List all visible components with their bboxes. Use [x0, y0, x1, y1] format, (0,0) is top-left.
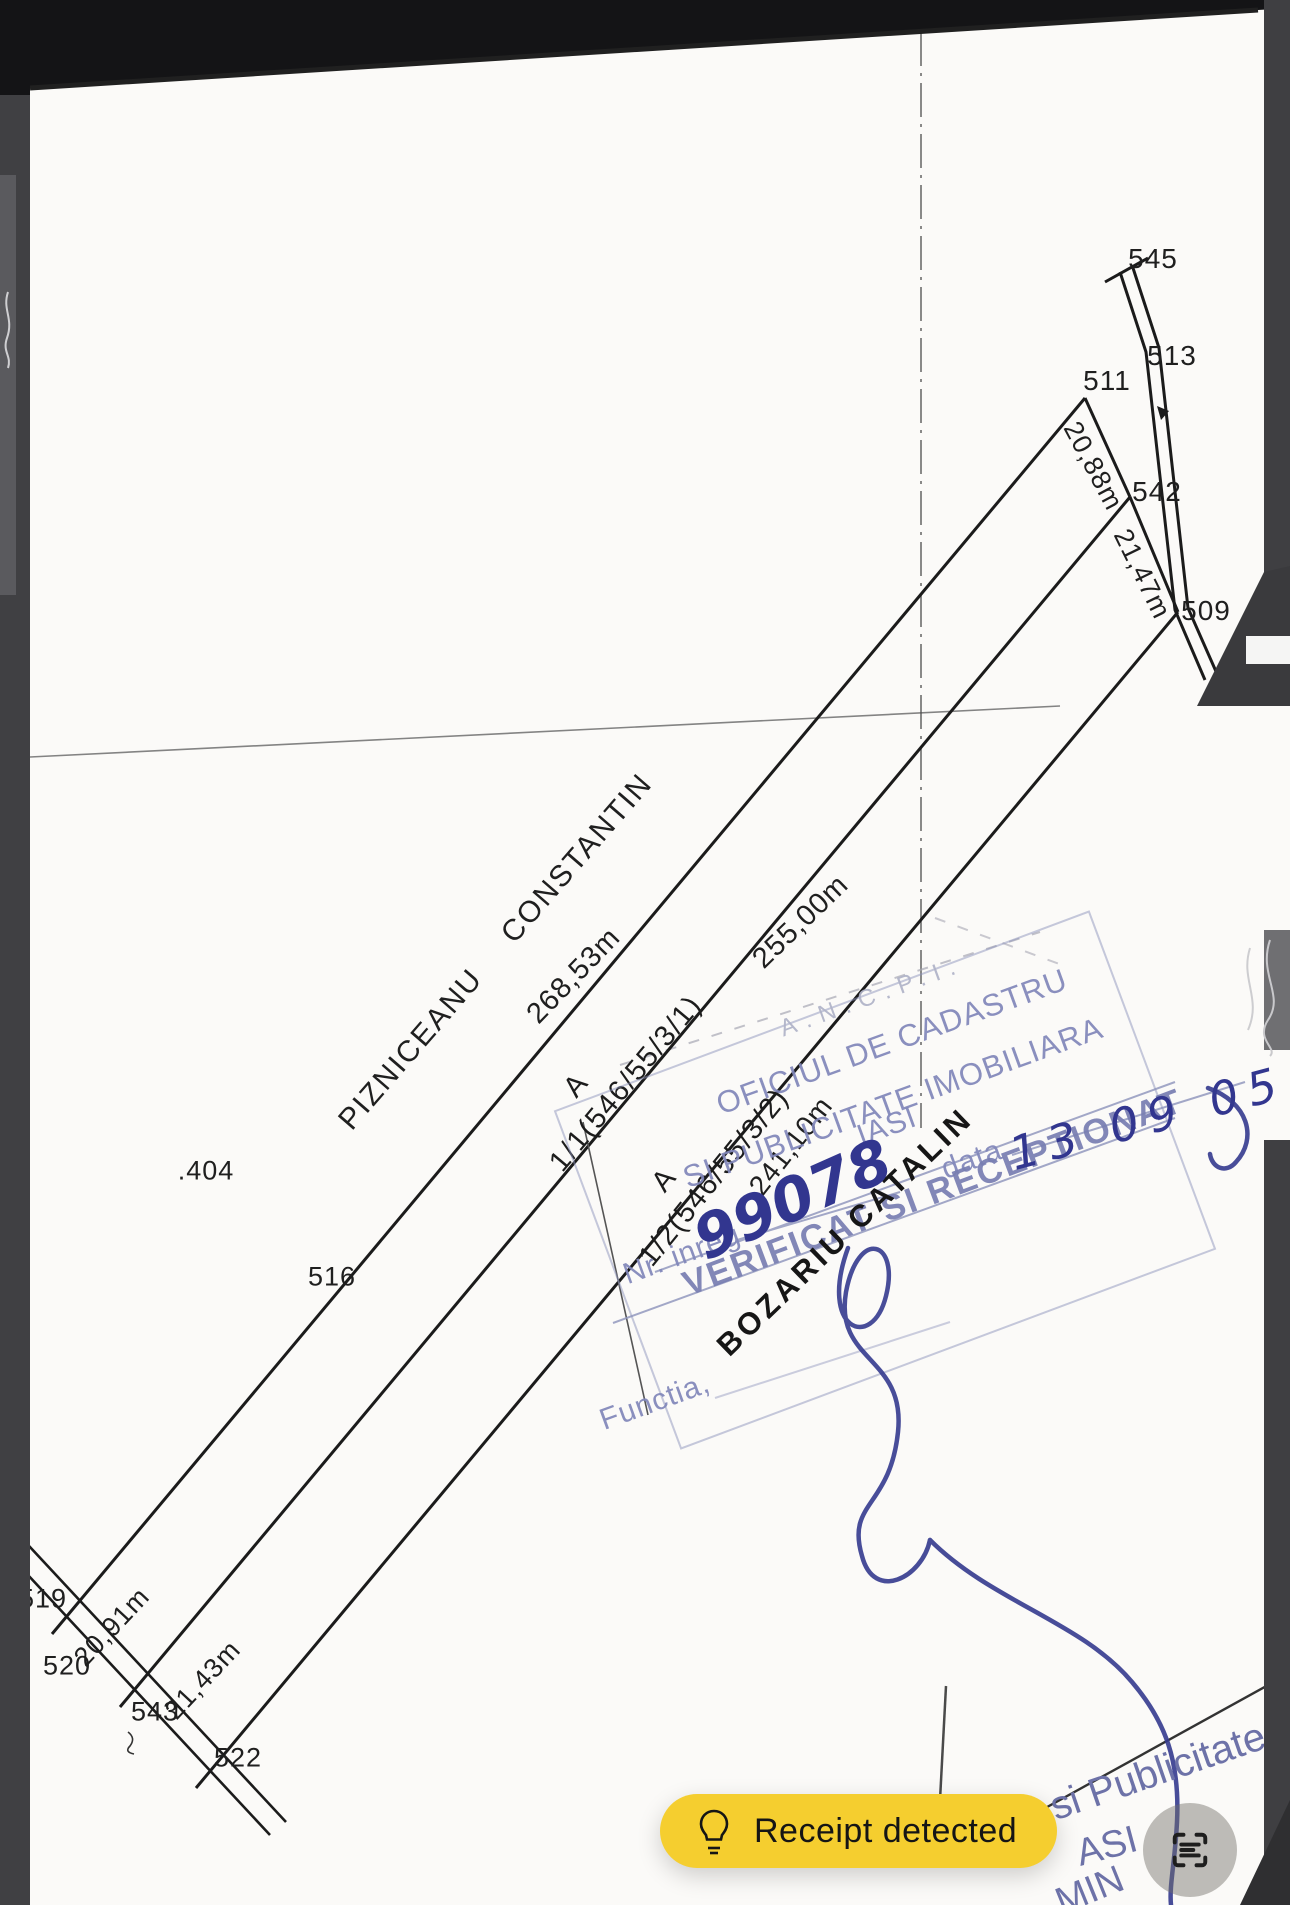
scan-preview-screen: 545 513 511 542 509 516 .404 519 520 543… [0, 0, 1290, 1905]
receipt-detected-label: Receipt detected [754, 1812, 1017, 1851]
photo-background-frame [0, 0, 1290, 1905]
receipt-detected-pill[interactable]: Receipt detected [660, 1794, 1057, 1868]
scan-document-icon [1166, 1826, 1214, 1874]
extract-text-button[interactable] [1143, 1803, 1237, 1897]
lightbulb-icon [694, 1807, 734, 1855]
